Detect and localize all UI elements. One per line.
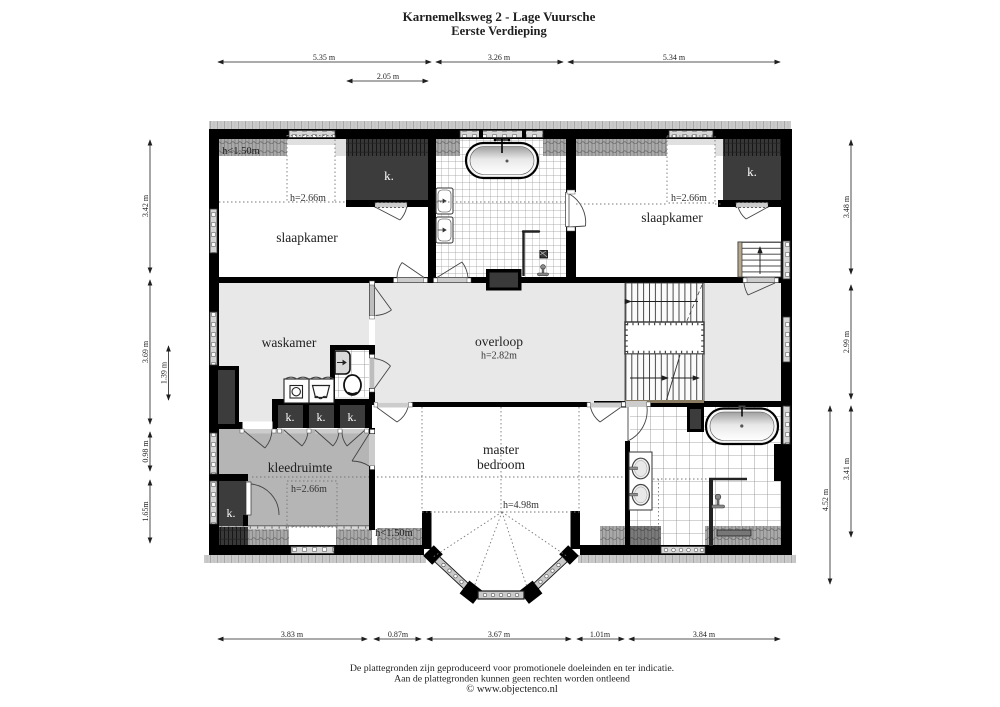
svg-text:h=2.66m: h=2.66m bbox=[291, 484, 327, 495]
svg-text:5.34 m: 5.34 m bbox=[663, 53, 686, 62]
svg-text:4.52 m: 4.52 m bbox=[821, 488, 830, 511]
svg-text:5.35 m: 5.35 m bbox=[313, 53, 336, 62]
svg-text:Karnemelksweg 2 - Lage Vuursch: Karnemelksweg 2 - Lage Vuursche bbox=[403, 9, 596, 24]
svg-text:2.05 m: 2.05 m bbox=[377, 72, 400, 81]
svg-text:3.83 m: 3.83 m bbox=[281, 630, 304, 639]
svg-text:k.: k. bbox=[348, 410, 357, 424]
svg-text:k.: k. bbox=[286, 410, 295, 424]
svg-text:3.41 m: 3.41 m bbox=[842, 457, 851, 480]
svg-text:h=2.66m: h=2.66m bbox=[671, 193, 707, 204]
svg-text:0.87m: 0.87m bbox=[388, 630, 409, 639]
svg-text:master: master bbox=[483, 442, 519, 457]
svg-text:3.26 m: 3.26 m bbox=[488, 53, 511, 62]
svg-text:k.: k. bbox=[227, 506, 236, 520]
svg-text:De plattegronden zijn geproduc: De plattegronden zijn geproduceerd voor … bbox=[350, 663, 674, 674]
svg-text:2.99 m: 2.99 m bbox=[842, 330, 851, 353]
svg-text:© www.objectenco.nl: © www.objectenco.nl bbox=[466, 684, 558, 695]
svg-text:bedroom: bedroom bbox=[477, 457, 525, 472]
svg-text:3.67 m: 3.67 m bbox=[488, 630, 511, 639]
svg-text:h=2.82m: h=2.82m bbox=[481, 351, 517, 362]
svg-text:Eerste Verdieping: Eerste Verdieping bbox=[451, 24, 547, 38]
svg-text:k.: k. bbox=[747, 164, 757, 179]
svg-text:h=2.66m: h=2.66m bbox=[290, 193, 326, 204]
svg-text:kleedruimte: kleedruimte bbox=[268, 460, 332, 475]
svg-text:slaapkamer: slaapkamer bbox=[641, 210, 703, 225]
svg-text:h<1.50m: h<1.50m bbox=[222, 146, 260, 157]
svg-text:h=4.98m: h=4.98m bbox=[503, 500, 539, 511]
svg-text:1.01m: 1.01m bbox=[590, 630, 611, 639]
svg-text:3.84 m: 3.84 m bbox=[693, 630, 716, 639]
svg-text:Aan de plattegronden kunnen ge: Aan de plattegronden kunnen geen rechten… bbox=[394, 674, 630, 685]
svg-text:k.: k. bbox=[317, 410, 326, 424]
svg-text:h<1.50m: h<1.50m bbox=[375, 528, 413, 539]
svg-text:3.42 m: 3.42 m bbox=[141, 194, 150, 217]
svg-text:waskamer: waskamer bbox=[262, 335, 317, 350]
svg-text:1.65m: 1.65m bbox=[141, 501, 150, 522]
svg-text:3.69 m: 3.69 m bbox=[141, 340, 150, 363]
svg-text:overloop: overloop bbox=[475, 334, 523, 349]
svg-text:1.39 m: 1.39 m bbox=[160, 361, 169, 384]
svg-text:k.: k. bbox=[384, 168, 394, 183]
svg-text:slaapkamer: slaapkamer bbox=[276, 230, 338, 245]
svg-text:0.98 m: 0.98 m bbox=[141, 440, 150, 463]
svg-text:3.48 m: 3.48 m bbox=[842, 195, 851, 218]
